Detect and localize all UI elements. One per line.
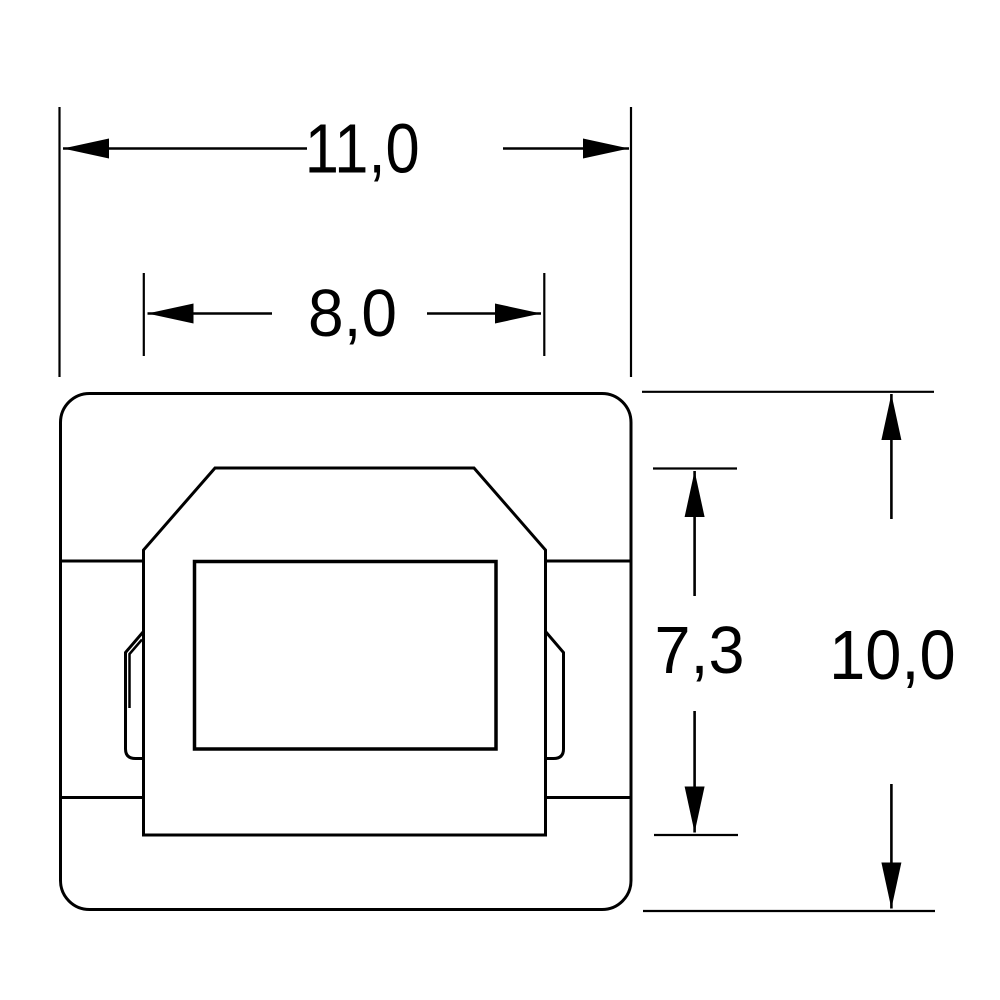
svg-text:8,0: 8,0 [308,276,397,351]
svg-text:11,0: 11,0 [305,110,420,188]
svg-text:10,0: 10,0 [829,616,956,694]
svg-text:7,3: 7,3 [655,613,745,688]
